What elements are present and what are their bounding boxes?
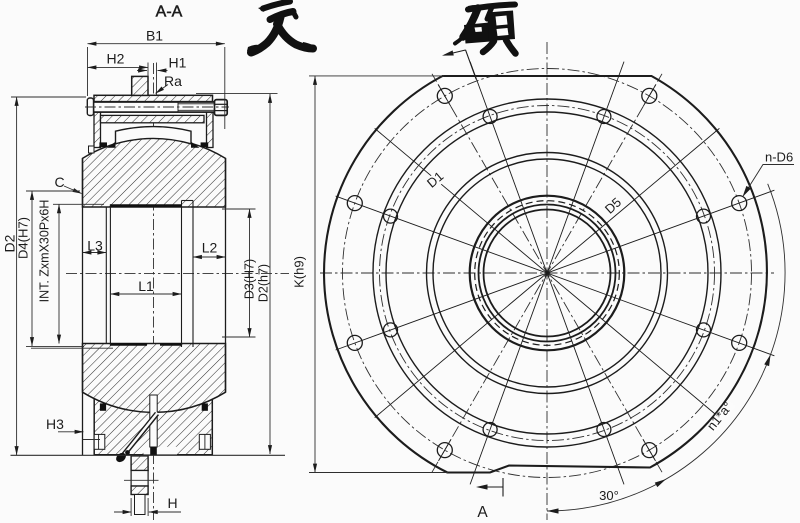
svg-text:A: A [477,504,488,521]
svg-text:D3(H7): D3(H7) [243,259,257,299]
svg-text:30°: 30° [599,488,619,503]
svg-text:H1: H1 [169,55,187,71]
svg-text:A-A: A-A [156,4,183,21]
svg-text:D4(H7): D4(H7) [16,217,31,259]
svg-text:L1: L1 [138,278,154,294]
svg-text:n-D6: n-D6 [765,150,793,165]
svg-text:H3: H3 [46,416,64,432]
svg-text:K(h9): K(h9) [292,256,307,288]
svg-text:C: C [54,174,64,190]
svg-text:H: H [167,495,177,511]
svg-text:Ra: Ra [164,73,182,89]
svg-text:L3: L3 [87,238,103,254]
svg-text:H2: H2 [107,51,125,67]
svg-text:B1: B1 [146,28,163,44]
svg-text:INT. ZxmX30Px6H: INT. ZxmX30Px6H [38,200,52,303]
svg-text:L2: L2 [202,240,218,256]
svg-text:D2(h7): D2(h7) [257,264,271,302]
